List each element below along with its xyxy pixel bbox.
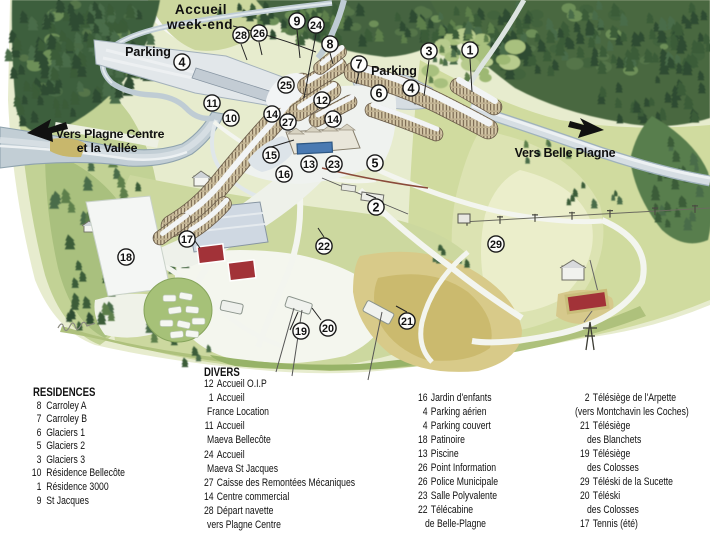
- svg-text:13: 13: [303, 159, 315, 171]
- svg-text:26: 26: [253, 28, 265, 40]
- svg-text:12: 12: [316, 95, 328, 107]
- svg-text:28: 28: [235, 30, 247, 42]
- svg-text:27: 27: [282, 117, 294, 129]
- svg-text:week-end: week-end: [166, 17, 233, 32]
- svg-text:16: 16: [278, 169, 290, 181]
- svg-text:25: 25: [280, 80, 292, 92]
- svg-text:Parking: Parking: [371, 64, 417, 78]
- svg-text:Accueil: Accueil: [175, 2, 227, 17]
- svg-text:8: 8: [327, 37, 334, 51]
- svg-text:15: 15: [265, 150, 277, 162]
- svg-text:4: 4: [179, 55, 186, 69]
- svg-text:4: 4: [408, 81, 415, 95]
- svg-text:2: 2: [373, 200, 380, 214]
- svg-text:Parking: Parking: [125, 45, 171, 59]
- svg-text:6: 6: [376, 86, 383, 100]
- svg-text:1: 1: [467, 43, 474, 57]
- svg-text:14: 14: [266, 109, 278, 121]
- svg-text:29: 29: [490, 239, 502, 251]
- svg-text:9: 9: [294, 14, 301, 28]
- svg-text:14: 14: [327, 114, 339, 126]
- svg-text:10: 10: [225, 113, 237, 125]
- svg-text:21: 21: [401, 316, 413, 328]
- svg-text:7: 7: [356, 57, 363, 71]
- svg-text:3: 3: [426, 44, 433, 58]
- svg-text:20: 20: [322, 323, 334, 335]
- svg-text:24: 24: [310, 20, 322, 32]
- svg-text:22: 22: [318, 241, 330, 253]
- svg-text:18: 18: [120, 252, 132, 264]
- svg-text:19: 19: [295, 326, 307, 338]
- svg-text:23: 23: [328, 159, 340, 171]
- svg-text:5: 5: [372, 156, 379, 170]
- svg-text:11: 11: [206, 98, 217, 110]
- svg-text:17: 17: [181, 234, 193, 246]
- svg-text:Vers Belle Plagne: Vers Belle Plagne: [515, 146, 616, 160]
- svg-text:et la Vallée: et la Vallée: [77, 141, 138, 155]
- svg-text:Vers Plagne Centre: Vers Plagne Centre: [56, 127, 165, 141]
